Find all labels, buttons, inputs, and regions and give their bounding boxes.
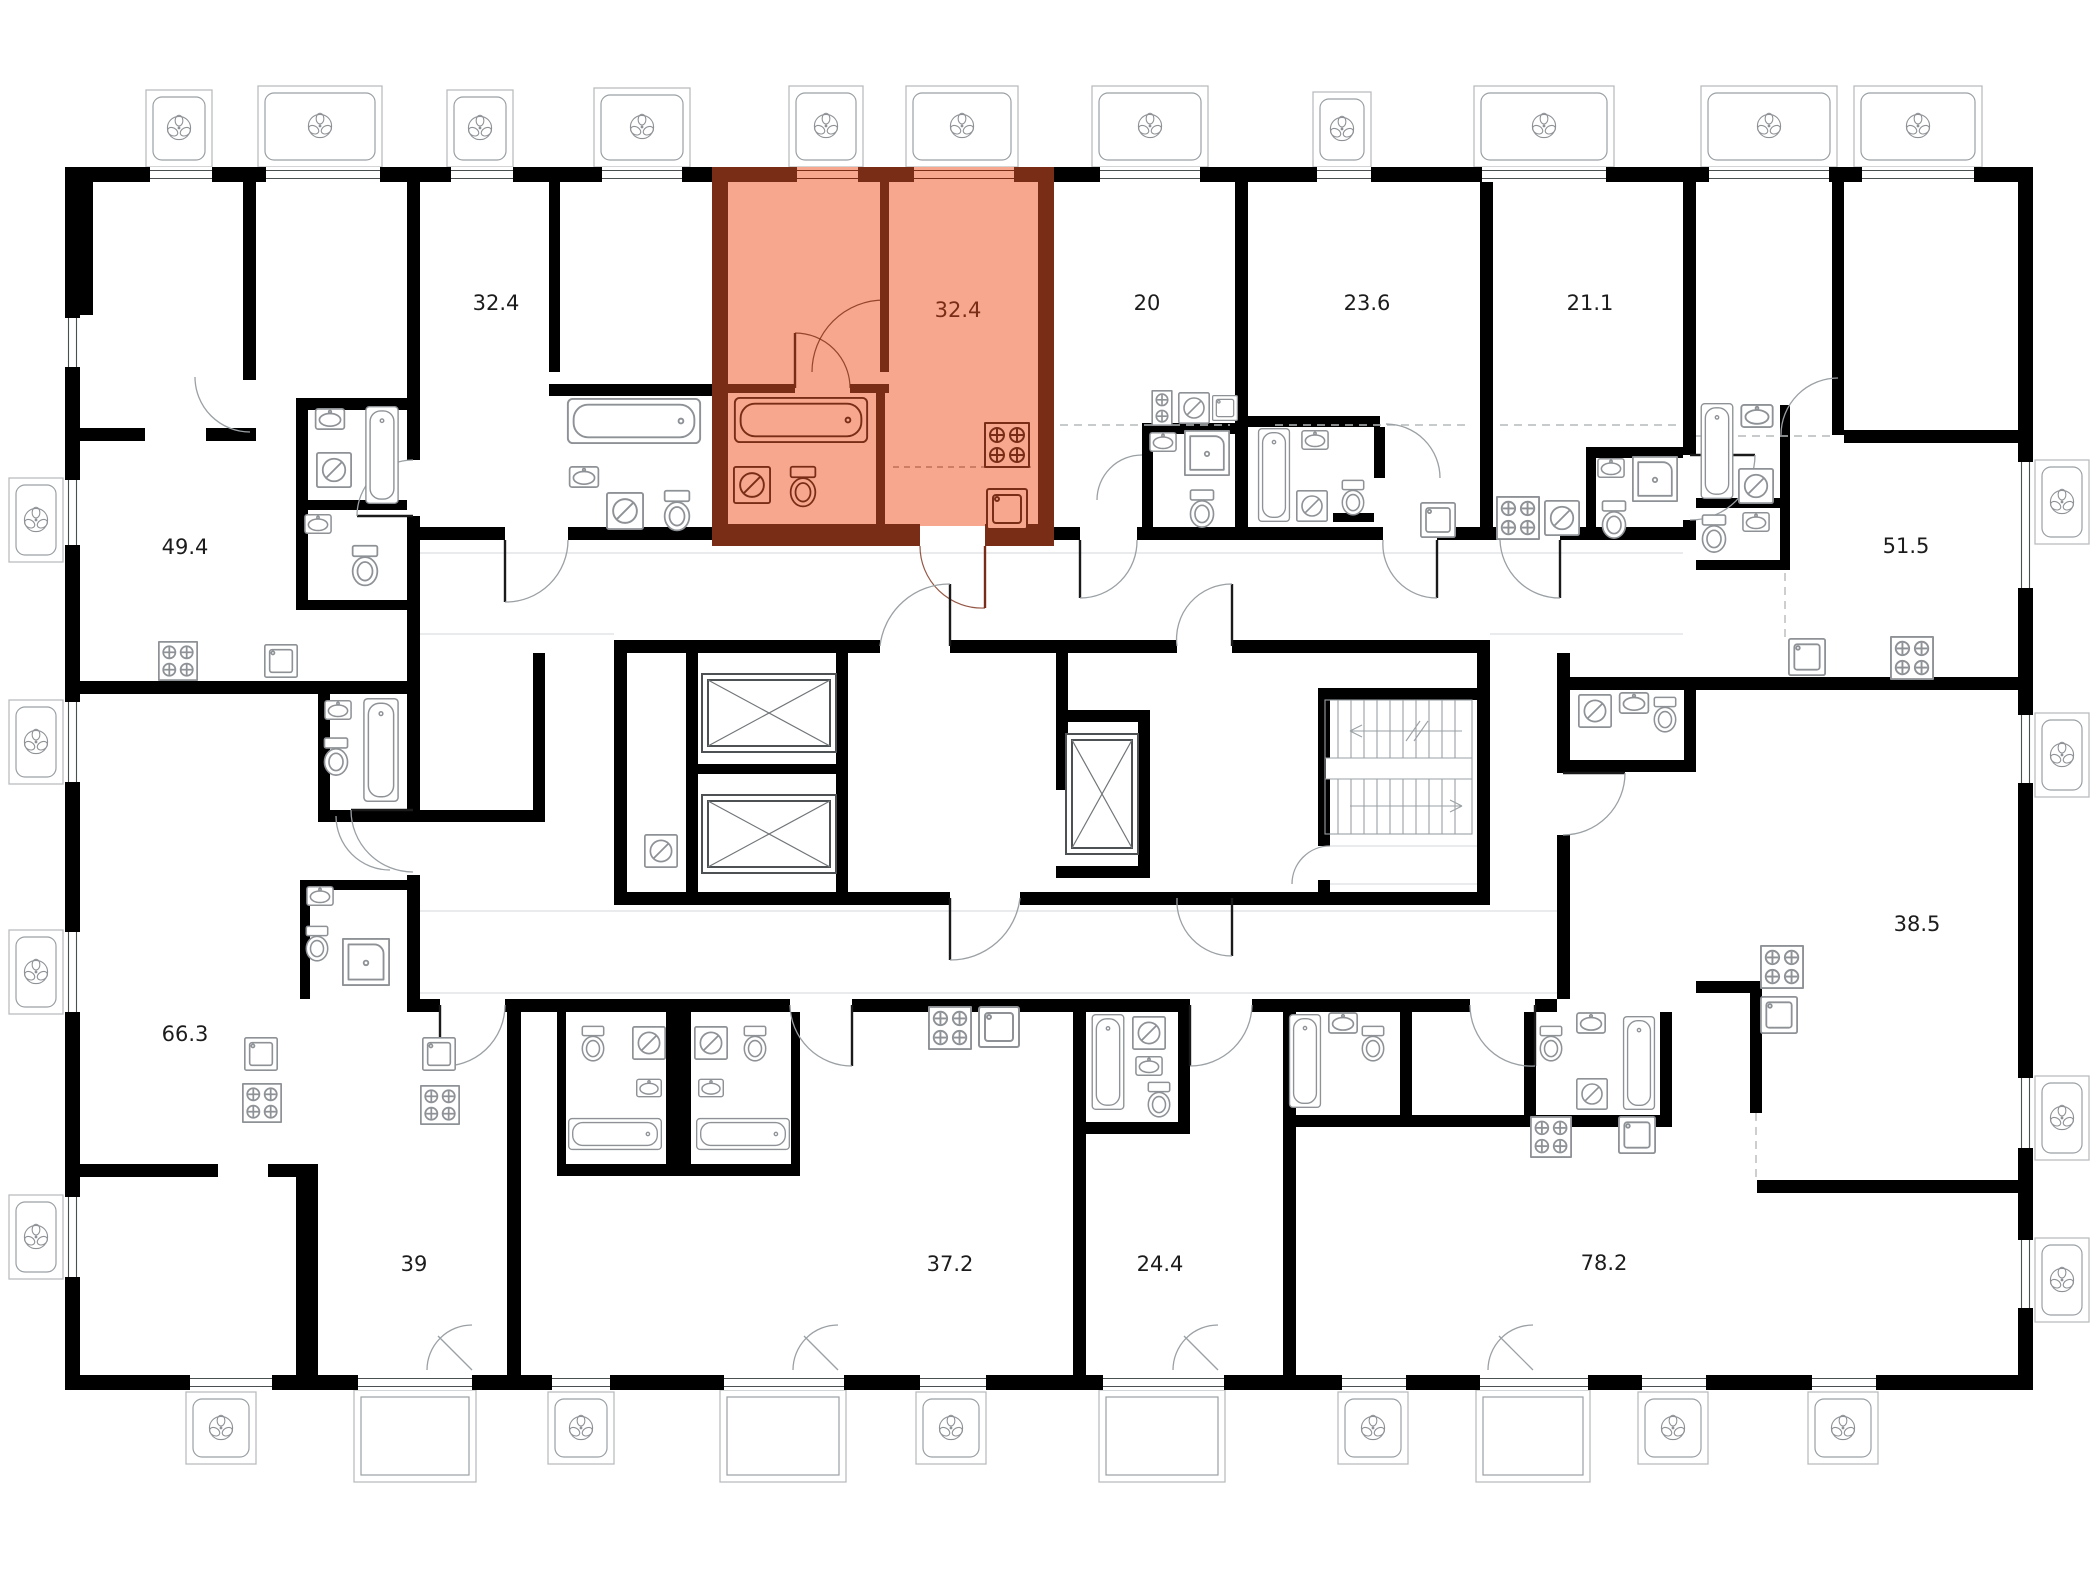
elevator-icon [702, 674, 836, 752]
balcony [906, 86, 1018, 167]
door [1177, 898, 1232, 956]
balcony [720, 1390, 846, 1482]
balcony [9, 1195, 63, 1279]
toilet-icon [1362, 1026, 1383, 1060]
stove-icon [243, 1084, 281, 1122]
door [1500, 540, 1560, 598]
balcony [1476, 1390, 1590, 1482]
unit-area-label[interactable]: 49.4 [162, 535, 209, 559]
balcony [1338, 1392, 1408, 1464]
shower-icon [1185, 431, 1229, 475]
kitchen-sink-icon [1421, 503, 1455, 537]
sink-icon [1150, 433, 1176, 451]
sink-icon [1743, 513, 1769, 531]
floor-plan-canvas: 32.4 32.4 20 23.6 21.1 49.4 51.5 66.3 38… [0, 0, 2098, 1586]
shower-icon [1633, 457, 1677, 501]
sink-icon [570, 467, 599, 487]
balcony [594, 88, 690, 167]
kitchen-sink-icon [245, 1038, 277, 1070]
toilet-icon [744, 1026, 765, 1060]
bathtub-icon [1092, 1015, 1124, 1110]
washing-machine-icon [1179, 393, 1209, 423]
unit-area-label[interactable]: 78.2 [1581, 1251, 1628, 1275]
balcony [1701, 86, 1837, 167]
balcony [2035, 1076, 2089, 1160]
toilet-icon [1342, 480, 1363, 514]
washing-machine-icon [645, 835, 677, 867]
sink-icon [1620, 693, 1649, 713]
balcony [2035, 1238, 2089, 1322]
door [1190, 1005, 1252, 1066]
sink-icon [325, 701, 351, 719]
washing-machine-icon [734, 467, 770, 503]
washing-machine-icon [1577, 1079, 1607, 1109]
balcony-door [1173, 1325, 1218, 1370]
balcony [1099, 1390, 1225, 1482]
sink-icon [637, 1079, 662, 1096]
unit-area-label[interactable]: 20 [1134, 291, 1161, 315]
elevator-icon [1066, 734, 1138, 854]
unit-area-label[interactable]: 24.4 [1137, 1252, 1184, 1276]
door [1080, 540, 1137, 598]
stove-icon [985, 423, 1029, 467]
toilet-icon [1540, 1026, 1561, 1060]
toilet-icon [582, 1026, 603, 1060]
door [505, 540, 568, 602]
toilet-icon [665, 491, 690, 531]
unit-area-label[interactable]: 38.5 [1894, 912, 1941, 936]
toilet-icon [324, 738, 347, 775]
floor-plan: 32.4 32.4 20 23.6 21.1 49.4 51.5 66.3 38… [0, 0, 2098, 1586]
door [1383, 540, 1437, 598]
bathtub-icon [697, 1119, 790, 1150]
washing-machine-icon [633, 1027, 665, 1059]
washing-machine-icon [1297, 491, 1327, 521]
toilet-icon [1702, 515, 1725, 552]
kitchen-sink-icon [423, 1038, 455, 1070]
stove-icon [1891, 637, 1933, 679]
balcony [916, 1392, 986, 1464]
door [950, 898, 1020, 960]
door [1386, 424, 1440, 478]
balcony [1092, 86, 1208, 167]
washing-machine-icon [607, 493, 643, 529]
bathtub-icon [1259, 429, 1290, 522]
balcony [258, 86, 382, 167]
balcony [9, 478, 63, 562]
unit-area-label-highlighted[interactable]: 32.4 [935, 298, 982, 322]
balcony [146, 90, 212, 167]
balcony [1808, 1392, 1878, 1464]
corridor-trim [420, 553, 1683, 993]
toilet-icon [1654, 697, 1675, 731]
stove-icon [929, 1007, 971, 1049]
washing-machine-icon [1739, 469, 1773, 503]
door [1177, 584, 1232, 646]
toilet-icon [791, 467, 816, 507]
sink-icon [699, 1079, 724, 1096]
sink-icon [1136, 1057, 1162, 1075]
kitchen-sink-icon [1213, 396, 1238, 421]
toilet-icon [1190, 490, 1213, 527]
kitchen-sink-icon [1789, 639, 1825, 675]
unit-area-label[interactable]: 21.1 [1567, 291, 1614, 315]
stairs-icon [1325, 700, 1477, 884]
balcony [1474, 86, 1614, 167]
bathtub-icon [568, 399, 700, 443]
door [336, 816, 390, 870]
balcony [9, 930, 63, 1014]
balcony [186, 1392, 256, 1464]
unit-area-label[interactable]: 39 [401, 1252, 428, 1276]
sink-icon [1302, 431, 1328, 449]
shower-icon [343, 939, 389, 985]
balcony [789, 86, 863, 167]
washing-machine-icon [1545, 501, 1579, 535]
unit-area-label[interactable]: 23.6 [1344, 291, 1391, 315]
unit-area-label[interactable]: 51.5 [1883, 534, 1930, 558]
bathtub-icon [364, 699, 398, 802]
stove-icon [1152, 391, 1172, 425]
washing-machine-icon [1133, 1017, 1165, 1049]
unit-area-label[interactable]: 32.4 [473, 291, 520, 315]
toilet-icon [1602, 501, 1625, 538]
sink-icon [307, 887, 333, 905]
door [1097, 455, 1142, 500]
balcony [1313, 92, 1371, 167]
door [920, 546, 985, 608]
elevator-icon [702, 795, 836, 873]
toilet-icon [1148, 1082, 1169, 1116]
stove-icon [1761, 946, 1803, 988]
balcony-door [793, 1325, 838, 1370]
balcony [9, 700, 63, 784]
balcony-door [1488, 1325, 1533, 1370]
toilet-icon [306, 926, 327, 960]
sink-icon [1741, 405, 1772, 427]
bathtub-icon [1701, 404, 1733, 499]
washing-machine-icon [1579, 695, 1611, 727]
balcony [548, 1392, 614, 1464]
balcony [1854, 86, 1982, 167]
bathtub-icon [366, 407, 398, 504]
washing-machine-icon [695, 1027, 727, 1059]
balcony [1638, 1392, 1708, 1464]
door [880, 584, 950, 646]
sink-icon [1577, 1013, 1605, 1033]
sink-icon [316, 409, 345, 429]
unit-area-label[interactable]: 37.2 [927, 1252, 974, 1276]
sink-icon [305, 515, 331, 533]
bathtub-icon [1290, 1015, 1321, 1108]
washing-machine-icon [317, 453, 351, 487]
bathtub-icon [735, 398, 867, 442]
stove-icon [421, 1086, 459, 1124]
unit-area-label[interactable]: 66.3 [162, 1022, 209, 1046]
toilet-icon [353, 546, 378, 586]
kitchen-sink-icon [1761, 997, 1797, 1033]
door [1292, 846, 1330, 884]
door [1563, 773, 1625, 835]
bathtub-icon [569, 1119, 662, 1150]
door [195, 377, 250, 432]
sink-icon [1329, 1013, 1357, 1033]
balcony-door [427, 1325, 472, 1370]
stove-icon [1531, 1117, 1571, 1157]
kitchen-sink-icon [265, 645, 297, 677]
kitchen-sink-icon [1619, 1117, 1655, 1153]
kitchen-sink-icon [987, 489, 1027, 529]
stove-icon [1497, 497, 1539, 539]
bathtub-icon [1624, 1017, 1655, 1110]
balcony [447, 90, 513, 167]
balcony [2035, 713, 2089, 797]
balcony [2035, 460, 2089, 544]
balcony [354, 1390, 476, 1482]
stove-icon [159, 642, 197, 680]
kitchen-sink-icon [979, 1007, 1019, 1047]
sink-icon [1598, 459, 1624, 477]
